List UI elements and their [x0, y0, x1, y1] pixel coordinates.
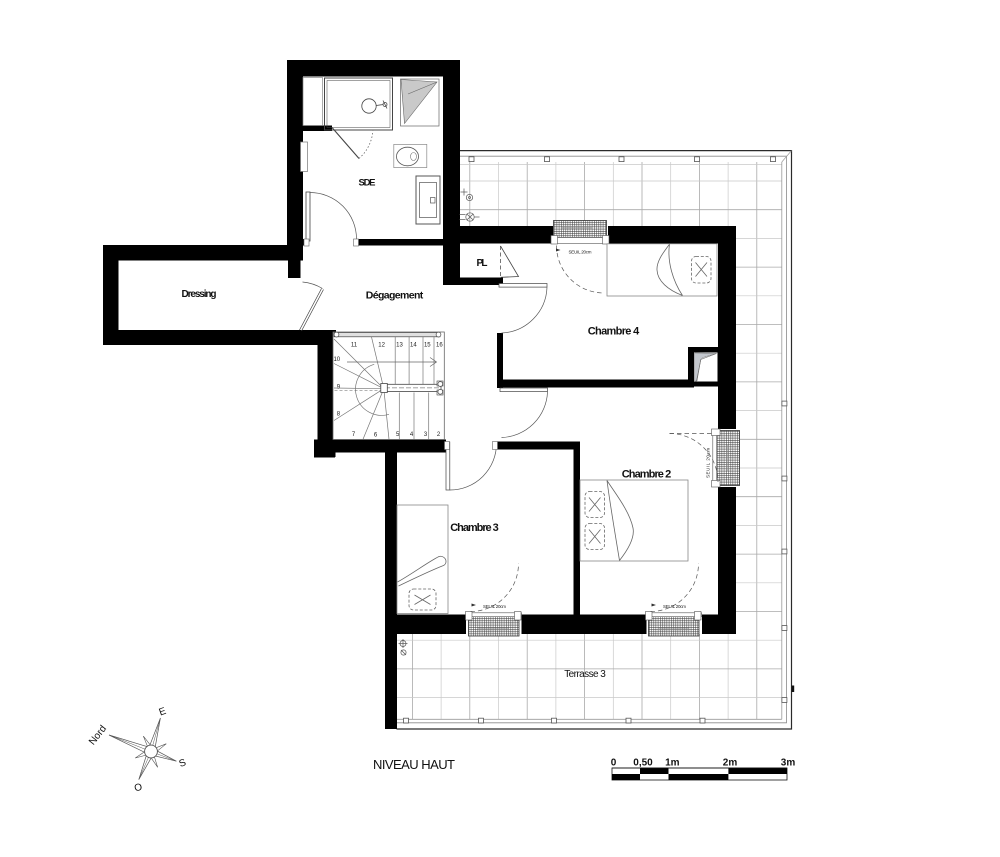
svg-text:10: 10	[333, 357, 340, 363]
svg-text:0,50: 0,50	[633, 758, 653, 769]
svg-text:Chambre 2: Chambre 2	[622, 468, 672, 480]
svg-text:16: 16	[436, 343, 443, 349]
svg-text:PL: PL	[477, 258, 488, 269]
svg-text:11: 11	[351, 343, 358, 349]
svg-text:12: 12	[378, 343, 385, 349]
svg-text:14: 14	[410, 343, 417, 349]
svg-text:SEUIL 20cm: SEUIL 20cm	[483, 604, 506, 609]
svg-text:15: 15	[424, 343, 431, 349]
svg-text:1m: 1m	[665, 758, 680, 769]
svg-text:3m: 3m	[781, 758, 796, 769]
svg-text:0: 0	[611, 758, 617, 769]
svg-text:Terrasse 3: Terrasse 3	[564, 669, 606, 680]
svg-text:NIVEAU HAUT: NIVEAU HAUT	[373, 757, 455, 772]
svg-text:SDE: SDE	[359, 178, 376, 189]
svg-text:13: 13	[396, 343, 403, 349]
svg-text:Dressing: Dressing	[182, 289, 217, 300]
svg-text:Chambre 3: Chambre 3	[450, 522, 499, 534]
svg-text:SEUIL 20cm: SEUIL 20cm	[663, 604, 686, 609]
svg-text:SEUIL 20cm: SEUIL 20cm	[706, 448, 711, 478]
svg-text:Chambre 4: Chambre 4	[588, 326, 640, 338]
svg-text:Dégagement: Dégagement	[366, 290, 424, 302]
svg-text:SEUIL 20cm: SEUIL 20cm	[569, 250, 592, 255]
svg-text:2m: 2m	[723, 758, 738, 769]
